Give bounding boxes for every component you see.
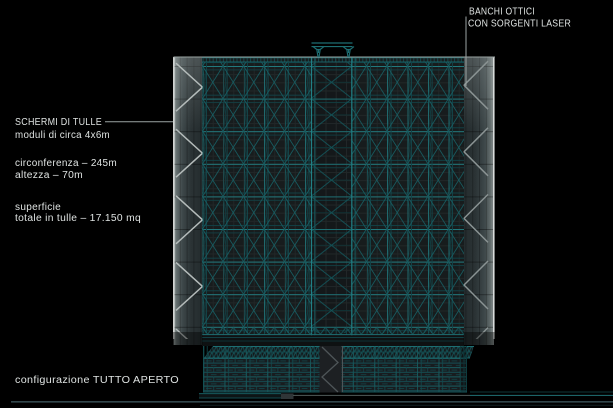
svg-text:configurazione TUTTO APERTO: configurazione TUTTO APERTO: [15, 375, 179, 386]
svg-text:CON SORGENTI LASER: CON SORGENTI LASER: [468, 19, 571, 30]
svg-text:circonferenza – 245m: circonferenza – 245m: [15, 158, 117, 169]
svg-text:altezza – 70m: altezza – 70m: [15, 170, 83, 181]
svg-text:totale in tulle – 17.150 mq: totale in tulle – 17.150 mq: [15, 213, 141, 224]
svg-text:BANCHI OTTICI: BANCHI OTTICI: [469, 7, 535, 18]
svg-text:SCHERMI DI TULLE: SCHERMI DI TULLE: [15, 117, 102, 128]
svg-text:superficie: superficie: [15, 202, 61, 213]
svg-text:moduli di circa 4x6m: moduli di circa 4x6m: [15, 130, 110, 141]
